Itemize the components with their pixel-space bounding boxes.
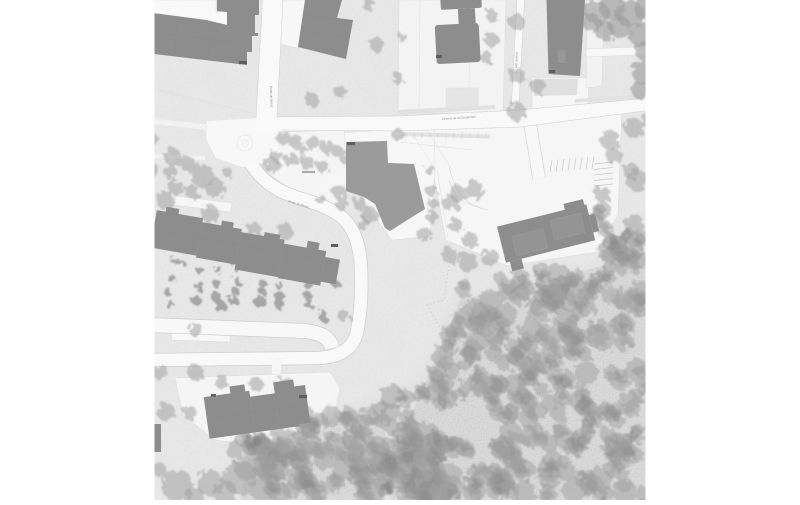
- svg-text:Chemin des Tey: Chemin des Tey: [514, 52, 519, 74]
- svg-text:Route de Bériaz: Route de Bériaz: [269, 86, 274, 108]
